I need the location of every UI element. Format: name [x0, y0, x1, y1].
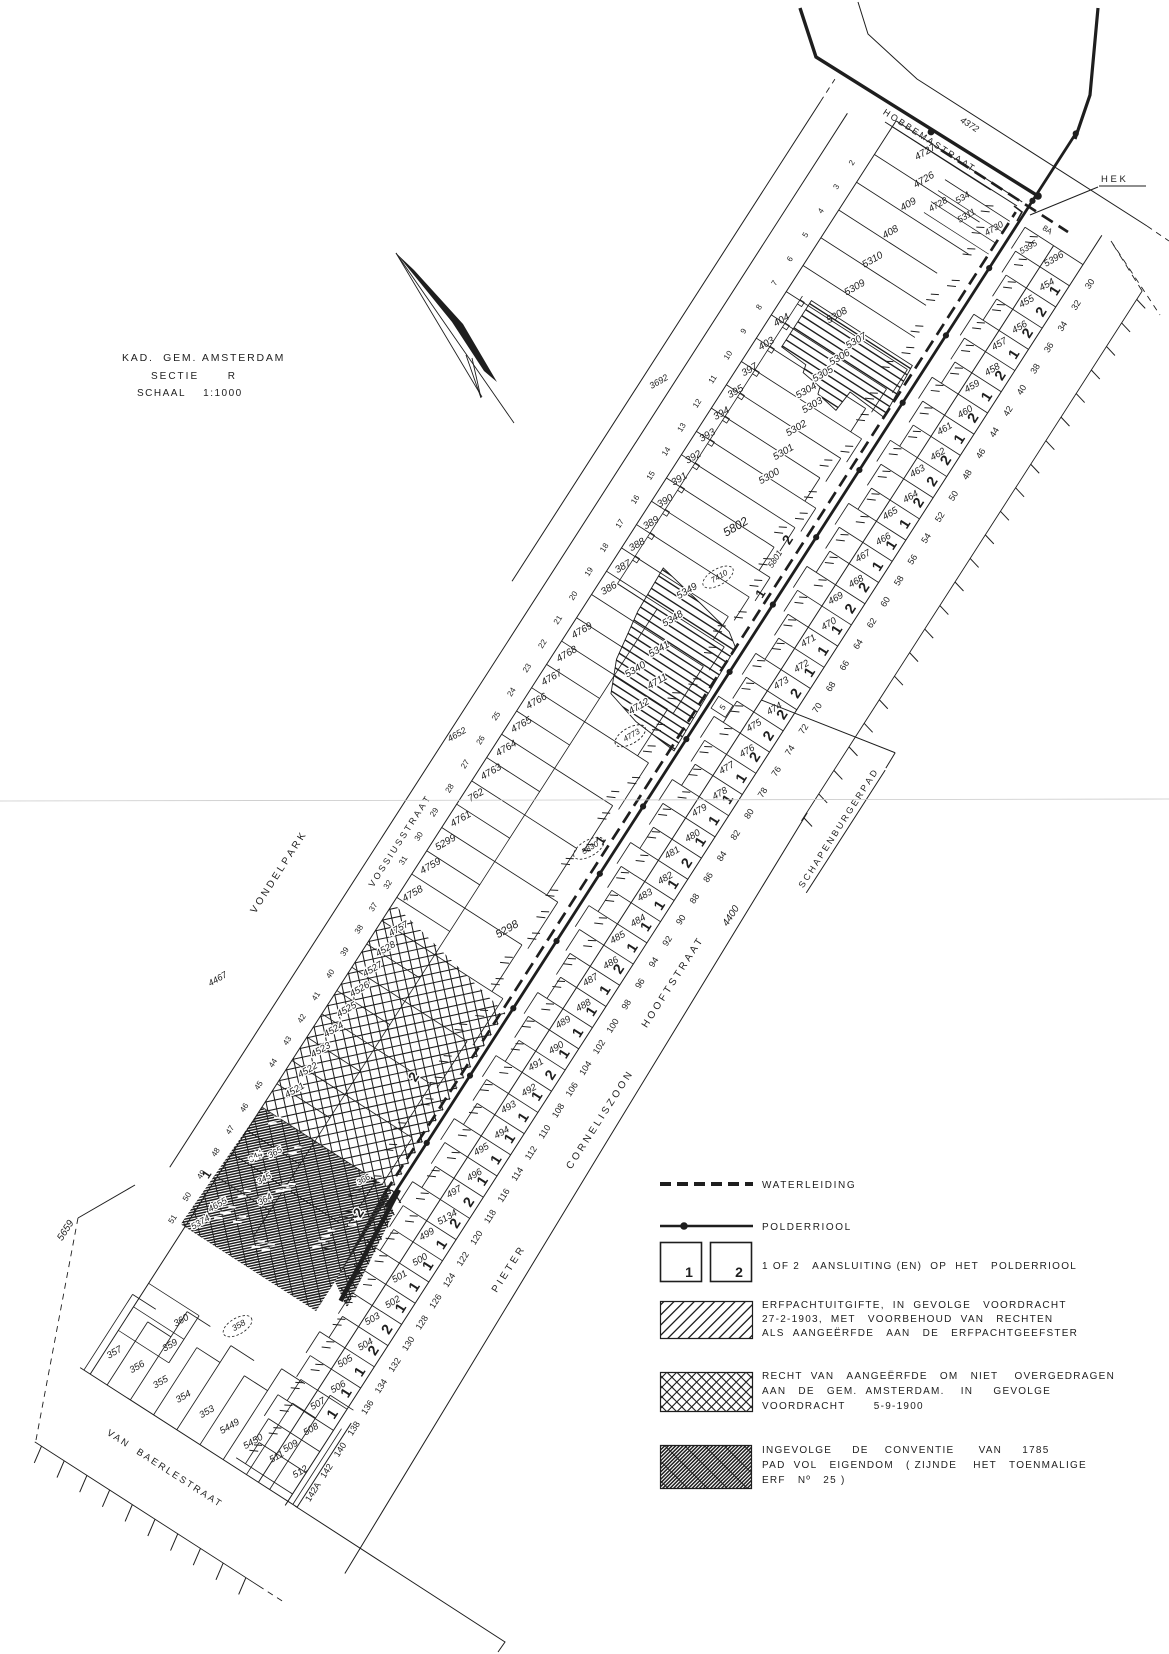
svg-text:54: 54 [919, 531, 933, 545]
svg-text:4726: 4726 [912, 170, 937, 191]
svg-text:409: 409 [898, 196, 918, 214]
svg-text:389: 389 [641, 514, 661, 532]
svg-text:1: 1 [951, 432, 969, 447]
svg-text:64: 64 [851, 637, 865, 651]
svg-text:78: 78 [756, 786, 770, 800]
svg-text:INGEVOLGE DE CONVENTIE: INGEVOLGE DE CONVENTIE VAN 1785 [762, 1445, 1050, 1456]
svg-text:2: 2 [735, 1264, 743, 1280]
svg-text:2: 2 [842, 601, 860, 616]
svg-text:5395: 5395 [1017, 238, 1039, 256]
svg-text:2: 2 [678, 856, 696, 871]
svg-text:5309: 5309 [843, 277, 868, 298]
svg-text:491: 491 [526, 1056, 545, 1073]
svg-text:27-2-1903, MET VOORBEHOUD: 27-2-1903, MET VOORBEHOUD VAN RECHTEN [762, 1314, 1053, 1325]
svg-text:70: 70 [810, 701, 824, 715]
svg-text:116: 116 [496, 1187, 512, 1204]
svg-text:PAD VOL EIGENDOM ( ZIJNDE: PAD VOL EIGENDOM ( ZIJNDE HET TOENMALIGE [762, 1460, 1087, 1471]
svg-text:51: 51 [166, 1212, 179, 1225]
svg-text:132: 132 [386, 1356, 403, 1374]
svg-text:1: 1 [569, 1025, 587, 1040]
svg-text:12: 12 [691, 397, 704, 410]
svg-text:SECTIE R: SECTIE R [151, 371, 237, 382]
svg-text:36: 36 [1042, 341, 1056, 355]
svg-text:26: 26 [474, 734, 487, 747]
svg-text:461: 461 [935, 420, 954, 437]
svg-text:354: 354 [174, 1388, 193, 1405]
svg-text:2: 2 [778, 532, 796, 547]
svg-text:ERF Nº 25 ): ERF Nº 25 ) [762, 1475, 846, 1486]
svg-text:8A: 8A [1041, 223, 1055, 236]
svg-text:359: 359 [160, 1337, 180, 1355]
svg-text:ERFPACHTUITGIFTE, IN GEVOLGE: ERFPACHTUITGIFTE, IN GEVOLGE VOORDRACHT [762, 1300, 1067, 1311]
svg-text:4764: 4764 [494, 738, 519, 759]
svg-text:38: 38 [1028, 362, 1042, 376]
svg-text:7: 7 [770, 278, 780, 287]
svg-text:42: 42 [1001, 404, 1015, 418]
svg-text:100: 100 [604, 1017, 621, 1035]
svg-text:534: 534 [953, 189, 971, 205]
svg-text:4521: 4521 [283, 1081, 307, 1101]
svg-text:29: 29 [428, 806, 441, 819]
svg-text:4467: 4467 [206, 969, 229, 988]
svg-text:5450: 5450 [241, 1431, 265, 1452]
svg-text:4757: 4757 [387, 919, 411, 940]
svg-text:50: 50 [946, 489, 960, 503]
svg-text:102: 102 [591, 1038, 608, 1056]
svg-text:134: 134 [373, 1377, 390, 1395]
svg-text:20: 20 [567, 589, 580, 602]
svg-text:6: 6 [785, 254, 795, 263]
svg-text:5396: 5396 [1042, 249, 1066, 270]
svg-text:32: 32 [1069, 298, 1083, 312]
svg-text:13: 13 [676, 421, 689, 434]
svg-text:44: 44 [267, 1056, 280, 1069]
svg-text:42: 42 [295, 1012, 308, 1025]
svg-text:1: 1 [896, 516, 914, 531]
svg-text:126: 126 [427, 1292, 444, 1310]
svg-text:41: 41 [310, 990, 323, 1003]
svg-text:114: 114 [509, 1165, 525, 1182]
svg-text:353: 353 [197, 1403, 217, 1421]
svg-text:60: 60 [878, 595, 892, 609]
svg-text:124: 124 [441, 1271, 458, 1289]
svg-text:48: 48 [960, 468, 974, 482]
svg-text:1: 1 [685, 1264, 693, 1280]
svg-text:82: 82 [728, 828, 742, 842]
svg-text:2: 2 [760, 728, 778, 743]
svg-text:471: 471 [799, 632, 818, 649]
svg-text:5298: 5298 [494, 918, 522, 941]
svg-text:2: 2 [542, 1068, 560, 1083]
svg-text:30: 30 [1083, 277, 1097, 291]
svg-text:1: 1 [869, 559, 887, 574]
svg-text:762: 762 [466, 787, 486, 805]
svg-text:386: 386 [599, 580, 619, 598]
svg-text:1: 1 [351, 1364, 369, 1379]
svg-text:8: 8 [754, 302, 764, 311]
svg-text:2: 2 [847, 158, 857, 167]
svg-text:1: 1 [488, 1152, 506, 1167]
svg-text:37: 37 [367, 900, 380, 913]
svg-text:5659: 5659 [55, 1218, 77, 1243]
svg-text:1: 1 [406, 1280, 424, 1295]
svg-text:45: 45 [252, 1079, 265, 1092]
svg-text:1: 1 [1006, 347, 1024, 362]
svg-text:3: 3 [831, 182, 841, 191]
svg-text:16: 16 [629, 493, 642, 506]
svg-text:136: 136 [359, 1398, 376, 1416]
svg-text:24: 24 [505, 685, 518, 698]
svg-text:15: 15 [645, 469, 658, 482]
svg-text:34: 34 [1055, 319, 1069, 333]
svg-text:1: 1 [815, 644, 833, 659]
svg-text:80: 80 [742, 807, 756, 821]
svg-text:1: 1 [597, 983, 615, 998]
svg-text:46: 46 [238, 1101, 251, 1114]
svg-text:5310: 5310 [860, 250, 885, 271]
svg-text:392: 392 [684, 448, 704, 466]
svg-text:4768: 4768 [555, 644, 580, 665]
svg-text:4773: 4773 [622, 727, 642, 744]
svg-text:4652: 4652 [446, 725, 468, 744]
svg-text:ALS AANGEËRFDE AAN DE E: ALS AANGEËRFDE AAN DE ERFPACHTGEEFSTER [762, 1327, 1078, 1339]
svg-text:86: 86 [701, 870, 715, 884]
svg-text:32: 32 [382, 878, 395, 891]
svg-text:90: 90 [674, 913, 688, 927]
svg-text:84: 84 [715, 849, 729, 863]
svg-text:21: 21 [552, 613, 565, 626]
svg-text:110: 110 [536, 1123, 552, 1140]
svg-text:17: 17 [614, 517, 627, 530]
svg-text:1 OF 2 AANSLUITING (EN) OP: 1 OF 2 AANSLUITING (EN) OP HET POLDERRIO… [762, 1261, 1077, 1272]
svg-text:112: 112 [523, 1144, 539, 1161]
svg-text:5348: 5348 [660, 609, 685, 630]
svg-text:388: 388 [627, 536, 647, 554]
svg-text:14: 14 [660, 445, 673, 458]
svg-text:AAN DE GEM. AMSTERDAM.: AAN DE GEM. AMSTERDAM. IN GEVOLGE [762, 1386, 1051, 1397]
svg-text:3692: 3692 [648, 372, 670, 391]
svg-text:391: 391 [669, 471, 689, 489]
svg-text:2: 2 [924, 474, 942, 489]
svg-text:46: 46 [974, 446, 988, 460]
svg-text:22: 22 [536, 637, 549, 650]
svg-text:74: 74 [783, 743, 797, 757]
svg-text:512: 512 [291, 1463, 311, 1481]
svg-text:76: 76 [769, 764, 783, 778]
svg-text:509: 509 [281, 1437, 301, 1455]
svg-text:4767: 4767 [539, 667, 564, 688]
svg-text:108: 108 [550, 1101, 567, 1119]
svg-text:2: 2 [405, 1069, 423, 1084]
svg-text:118: 118 [482, 1208, 498, 1225]
svg-text:30: 30 [413, 830, 426, 843]
svg-text:98: 98 [619, 998, 633, 1012]
svg-text:56: 56 [906, 552, 920, 566]
svg-text:5802: 5802 [720, 514, 750, 540]
svg-text:5340: 5340 [623, 659, 648, 680]
svg-text:1: 1 [978, 389, 996, 404]
svg-text:POLDERRIOOL: POLDERRIOOL [762, 1222, 852, 1233]
svg-text:1: 1 [515, 1110, 533, 1125]
svg-text:5449: 5449 [218, 1416, 242, 1437]
svg-text:355: 355 [151, 1373, 171, 1391]
svg-text:122: 122 [454, 1250, 471, 1268]
svg-text:40: 40 [1015, 383, 1029, 397]
svg-text:2: 2 [787, 686, 805, 701]
svg-text:360: 360 [172, 1312, 192, 1330]
svg-text:4766: 4766 [524, 691, 549, 712]
svg-text:390: 390 [655, 492, 675, 510]
svg-text:25: 25 [490, 709, 503, 722]
svg-text:66: 66 [837, 658, 851, 672]
svg-text:1: 1 [733, 771, 751, 786]
svg-text:130: 130 [400, 1335, 417, 1353]
svg-text:2: 2 [460, 1195, 478, 1210]
svg-text:SCHAAL 1:1000: SCHAAL 1:1000 [137, 388, 243, 399]
svg-text:501: 501 [390, 1268, 409, 1285]
svg-text:18: 18 [598, 541, 611, 554]
svg-text:1: 1 [706, 813, 724, 828]
svg-text:1: 1 [433, 1237, 451, 1252]
svg-text:S C H A P E N B U R G E R P A: S C H A P E N B U R G E R P A D [796, 768, 879, 890]
svg-text:31: 31 [397, 854, 410, 867]
svg-text:4730: 4730 [983, 219, 1005, 238]
svg-text:4758: 4758 [400, 884, 425, 905]
svg-text:4524: 4524 [322, 1020, 346, 1040]
svg-text:19: 19 [583, 565, 596, 578]
svg-text:HOOFTSTRAAT: HOOFTSTRAAT [640, 934, 707, 1030]
svg-text:KAD. GEM. AMSTERDAM: KAD. GEM. AMSTERDAM [122, 352, 285, 364]
svg-text:23: 23 [521, 661, 534, 674]
svg-text:11: 11 [707, 373, 719, 385]
svg-text:WATERLEIDING: WATERLEIDING [762, 1180, 856, 1191]
svg-text:96: 96 [633, 976, 647, 990]
svg-text:68: 68 [824, 680, 838, 694]
svg-text:1: 1 [624, 940, 642, 955]
svg-text:50: 50 [181, 1190, 194, 1203]
svg-text:58: 58 [892, 574, 906, 588]
svg-text:408: 408 [881, 223, 901, 241]
svg-text:PIETER: PIETER [490, 1243, 529, 1294]
svg-text:356: 356 [128, 1358, 148, 1376]
svg-text:H E K: H E K [1101, 174, 1126, 185]
svg-text:92: 92 [660, 934, 674, 948]
svg-text:387: 387 [613, 558, 633, 576]
svg-text:120: 120 [468, 1229, 485, 1247]
svg-text:RECHT VAN AANGEËRFDE OM: RECHT VAN AANGEËRFDE OM NIET OVERGEDRAGE… [762, 1370, 1115, 1382]
svg-text:43: 43 [281, 1034, 294, 1047]
svg-text:128: 128 [414, 1313, 431, 1331]
svg-text:106: 106 [563, 1080, 580, 1098]
svg-text:47: 47 [224, 1123, 237, 1136]
svg-text:88: 88 [688, 892, 702, 906]
svg-text:V O N D E L P A R K: V O N D E L P A R K [249, 831, 309, 916]
svg-text:VOORDRACHT 5-9-1900: VOORDRACHT 5-9-1900 [762, 1401, 924, 1412]
svg-text:38: 38 [353, 923, 366, 936]
svg-text:44: 44 [987, 425, 1001, 439]
svg-text:48: 48 [209, 1146, 222, 1159]
svg-text:40: 40 [324, 967, 337, 980]
svg-text:62: 62 [865, 616, 879, 630]
svg-text:94: 94 [647, 955, 661, 969]
svg-text:104: 104 [577, 1059, 594, 1077]
svg-text:1: 1 [651, 898, 669, 913]
svg-text:4: 4 [816, 206, 826, 215]
svg-text:4763: 4763 [479, 762, 504, 783]
svg-text:4769: 4769 [570, 620, 595, 641]
svg-text:2: 2 [379, 1322, 397, 1337]
svg-text:5: 5 [800, 230, 810, 239]
svg-text:27: 27 [459, 758, 472, 771]
svg-text:39: 39 [338, 945, 351, 958]
svg-text:72: 72 [797, 722, 811, 736]
svg-text:52: 52 [933, 510, 947, 524]
svg-text:2: 2 [1033, 304, 1051, 319]
svg-text:9: 9 [739, 326, 749, 335]
svg-text:481: 481 [663, 844, 682, 861]
svg-text:1: 1 [324, 1407, 342, 1422]
svg-text:28: 28 [443, 782, 456, 795]
svg-text:4765: 4765 [509, 715, 534, 736]
svg-text:10: 10 [722, 349, 735, 362]
